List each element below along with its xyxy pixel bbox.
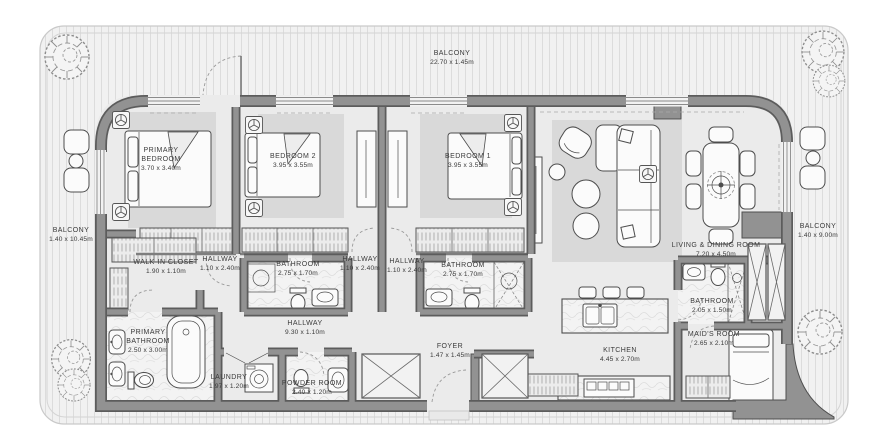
window-bedroom-2 xyxy=(276,96,333,107)
ac-diffuser-icon xyxy=(113,204,130,221)
window-living-top xyxy=(626,96,688,107)
bathroom-1-dims: 2.75 x 1.70m xyxy=(443,271,483,278)
primary-sink-1 xyxy=(109,330,125,354)
hallway-right-name: HALLWAY xyxy=(389,258,424,265)
bathroom-2-dims: 2.75 x 1.70m xyxy=(278,270,318,277)
primary-sink-2 xyxy=(109,362,125,386)
hallway-main-dims: 9.30 x 1.10m xyxy=(285,329,325,336)
shaft-left xyxy=(362,354,420,398)
bathroom-1-name: BATHROOM xyxy=(441,262,485,269)
balcony-top-dims: 22.70 x 1.45m xyxy=(430,59,474,66)
primary-bedroom-name2: BEDROOM xyxy=(141,156,180,163)
foyer-side-wall xyxy=(471,354,479,404)
bathroom-2-sink xyxy=(312,289,338,306)
primary-bathtub xyxy=(167,316,205,388)
kitchen-dims: 4.45 x 2.70m xyxy=(600,356,640,363)
window-left xyxy=(95,150,106,214)
primary-bathroom-name2: BATHROOM xyxy=(126,338,170,345)
living-dining-dims: 7.20 x 4.50m xyxy=(696,251,736,258)
maids-room-dims: 2.65 x 2.10m xyxy=(694,340,734,347)
tree-icon xyxy=(45,35,89,79)
living-dining-name: LIVING & DINING ROOM xyxy=(672,242,761,249)
shaft-right xyxy=(482,354,528,398)
hallway-right-dims: 1.10 x 2.40m xyxy=(387,267,427,274)
shaft-column-1 xyxy=(748,244,766,320)
ac-diffuser-icon xyxy=(113,112,130,129)
ac-diffuser-icon xyxy=(246,200,263,217)
foyer-cabinet xyxy=(528,374,578,396)
kitchen-name: KITCHEN xyxy=(603,347,637,354)
primary-bathroom-dims: 2.50 x 3.00m xyxy=(128,347,168,354)
window-primary xyxy=(148,96,200,107)
maids-room-name: MAID'S ROOM xyxy=(688,331,740,338)
hallway-mid-name: HALLWAY xyxy=(342,256,377,263)
bedroom-2-name: BEDROOM 2 xyxy=(270,153,316,160)
balcony-left-dims: 1.40 x 10.45m xyxy=(49,236,93,243)
maid-bathroom-toilet xyxy=(711,262,725,286)
side-table xyxy=(549,164,565,180)
hallway-main-name: HALLWAY xyxy=(287,320,322,327)
laundry-dims: 1.97 x 1.20m xyxy=(209,383,249,390)
primary-bathroom-name1: PRIMARY xyxy=(131,329,166,336)
bedroom-1-dims: 3.95 x 3.55m xyxy=(448,162,488,169)
balcony-right-dims: 1.40 x 9.00m xyxy=(798,232,838,239)
primary-bedroom-name1: PRIMARY xyxy=(144,147,179,154)
bedroom-1-name: BEDROOM 1 xyxy=(445,153,491,160)
foyer-dims: 1.47 x 1.45m xyxy=(430,352,470,359)
ac-diffuser-icon xyxy=(505,115,522,132)
balcony-top-name: BALCONY xyxy=(434,50,471,57)
foyer-name: FOYER xyxy=(437,343,463,350)
balcony-right-name: BALCONY xyxy=(800,223,837,230)
bedroom-1-closet xyxy=(416,228,524,252)
primary-bedroom-dims: 3.70 x 3.40m xyxy=(141,165,181,172)
hallway-left-name: HALLWAY xyxy=(202,256,237,263)
maid-bathroom-name: BATHROOM xyxy=(690,298,734,305)
bathroom-1-sink xyxy=(426,289,452,306)
bedroom-2-tv-console xyxy=(357,131,376,207)
hallway-mid-dims: 1.10 x 2.40m xyxy=(340,265,380,272)
floor-plan-page: BALCONY 22.70 x 1.45m BALCONY 1.40 x 10.… xyxy=(0,0,890,440)
hallway-left-dims: 1.10 x 2.40m xyxy=(200,265,240,272)
walk-in-closet-name: WALK-IN CLOSET xyxy=(133,259,198,266)
primary-toilet xyxy=(128,372,154,389)
ac-diffuser-icon xyxy=(246,117,263,134)
floor-plan: BALCONY 22.70 x 1.45m BALCONY 1.40 x 10.… xyxy=(0,0,890,440)
coffee-table-small xyxy=(573,213,599,239)
coffee-table-large xyxy=(572,180,600,208)
maid-closet xyxy=(686,376,730,398)
kitchen-island xyxy=(562,299,668,333)
washer xyxy=(245,364,273,392)
window-bedroom-1 xyxy=(410,96,467,107)
bedroom-2-closet xyxy=(242,228,348,252)
entrance-step xyxy=(429,411,469,420)
window-living-right xyxy=(782,142,793,212)
bedroom-2-dims: 3.95 x 3.55m xyxy=(273,162,313,169)
bedroom-1-tv-console xyxy=(388,131,407,207)
balcony-left-name: BALCONY xyxy=(53,227,90,234)
powder-room-dims: 2.40 x 1.20m xyxy=(292,389,332,396)
ac-diffuser-icon xyxy=(505,199,522,216)
tree-icon xyxy=(813,65,845,97)
laundry-name: LAUNDRY xyxy=(211,374,247,381)
maid-bathroom-sink xyxy=(683,264,705,280)
kitchen-stools xyxy=(579,287,644,298)
tree-icon xyxy=(58,369,90,401)
maid-bathroom-dims: 2.05 x 1.50m xyxy=(692,307,732,314)
ac-diffuser-icon xyxy=(640,166,657,183)
dining-table xyxy=(703,143,739,227)
bathroom-2-name: BATHROOM xyxy=(276,261,320,268)
walk-in-closet-dims: 1.90 x 1.10m xyxy=(146,268,186,275)
tree-icon xyxy=(798,310,842,354)
maid-bed xyxy=(729,330,773,404)
powder-room-name: POWDER ROOM xyxy=(282,380,342,387)
shaft-column-2 xyxy=(768,244,785,320)
